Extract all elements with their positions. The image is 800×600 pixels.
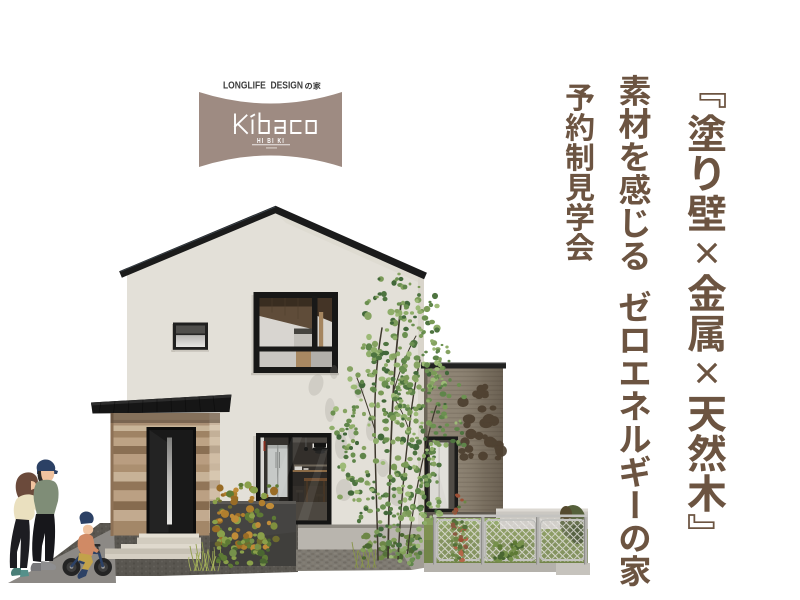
svg-text:HI BI KI: HI BI KI	[257, 138, 285, 145]
svg-text:LONGLIFE DESIGN: LONGLIFE DESIGN	[223, 81, 303, 92]
